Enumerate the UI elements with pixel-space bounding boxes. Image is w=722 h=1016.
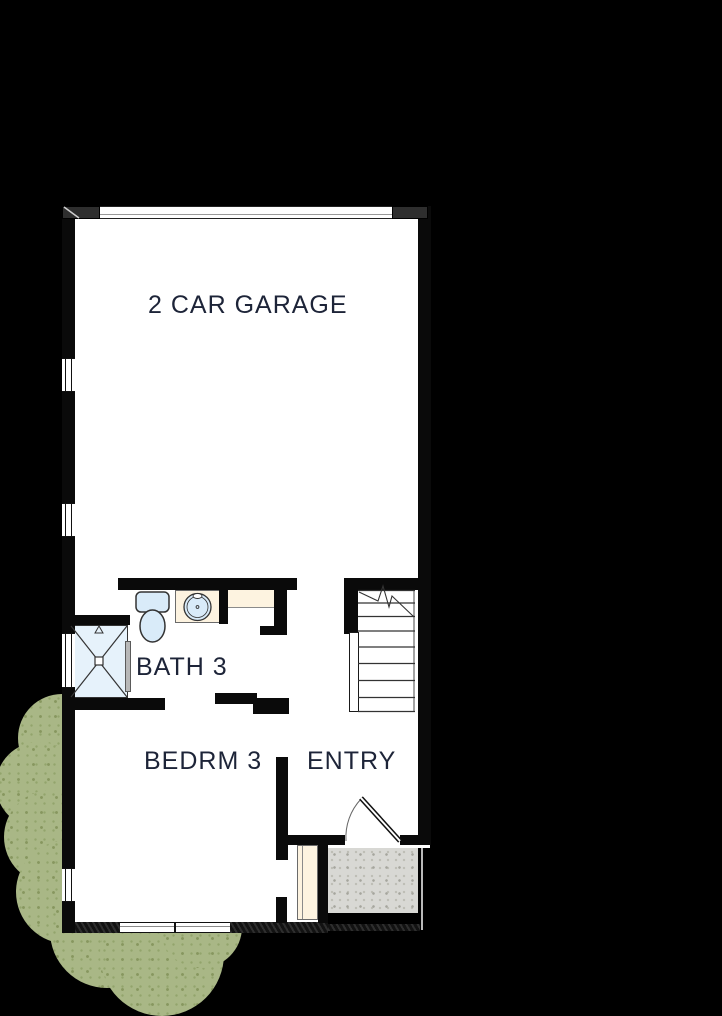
wall-entry-south-left bbox=[285, 835, 345, 845]
wall-shower-north bbox=[73, 615, 130, 625]
window-symbol-bedroom bbox=[62, 868, 75, 902]
room-label-bath: BATH 3 bbox=[136, 653, 228, 682]
shower-door bbox=[125, 641, 131, 692]
closet-shelf bbox=[228, 590, 274, 608]
garage-door-post-right bbox=[392, 206, 428, 219]
wall-bedroom-north-3 bbox=[253, 698, 289, 714]
garage-door-post-left bbox=[62, 206, 100, 219]
wall-bath-north bbox=[118, 578, 297, 590]
room-label-entry: ENTRY bbox=[307, 747, 396, 776]
porch-edge-line bbox=[421, 848, 423, 930]
wall-bedroom-north-2 bbox=[215, 693, 257, 704]
wall-entry-south-jamb bbox=[400, 835, 418, 845]
room-label-bedroom: BEDRM 3 bbox=[144, 747, 262, 776]
wall-bottom-right bbox=[230, 922, 328, 933]
wall-bottom-left bbox=[75, 922, 120, 933]
window-symbol-bath bbox=[62, 633, 75, 688]
vanity-counter bbox=[175, 590, 220, 623]
wall-vanity-divider bbox=[219, 590, 228, 624]
room-label-garage: 2 CAR GARAGE bbox=[148, 291, 348, 320]
window-symbol-garage-2 bbox=[62, 503, 75, 537]
shower-symbol-base bbox=[70, 625, 128, 698]
stairs-stringer bbox=[349, 632, 359, 712]
window-symbol-garage-1 bbox=[62, 358, 75, 392]
wall-closet-foot bbox=[260, 626, 287, 635]
wall-bottom-corner bbox=[62, 922, 75, 933]
wall-left bbox=[62, 206, 75, 933]
wall-stairs-post bbox=[344, 578, 358, 634]
floor-plan-page: { "plan": { "type": "residential-floor-p… bbox=[0, 0, 722, 978]
garage-door-symbol bbox=[100, 206, 392, 219]
closet-door-symbol bbox=[297, 845, 318, 920]
floor-bedroom bbox=[62, 848, 328, 933]
wall-closet-east bbox=[318, 845, 328, 923]
wall-bedroom-north-1 bbox=[62, 698, 165, 710]
closet-door-line bbox=[302, 846, 303, 919]
window-mullion-tick bbox=[174, 922, 176, 933]
porch-bottom-wall bbox=[328, 924, 420, 931]
wall-closet-stub bbox=[276, 897, 287, 923]
porch-slab bbox=[328, 848, 418, 913]
wall-right bbox=[418, 206, 431, 845]
